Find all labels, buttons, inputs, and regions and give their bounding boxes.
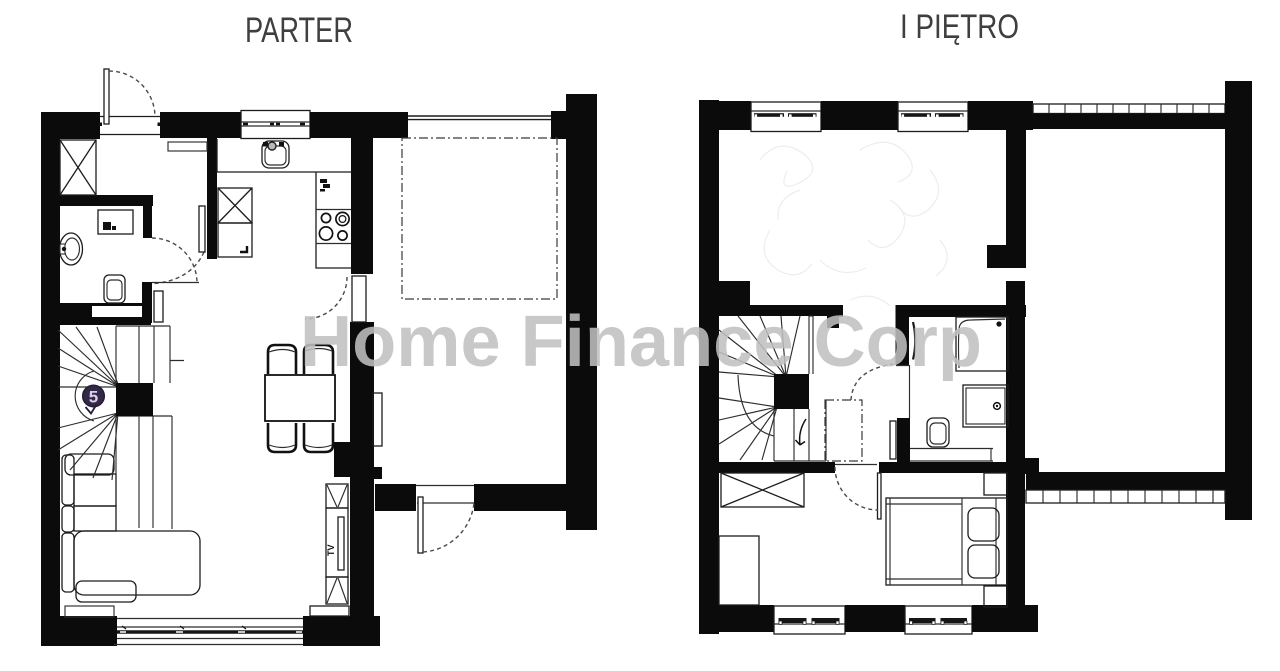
svg-text:PARTER: PARTER [245, 11, 353, 50]
svg-text:TV: TV [326, 544, 336, 556]
svg-text:I PIĘTRO: I PIĘTRO [900, 8, 1019, 46]
svg-text:Home Finance Corp: Home Finance Corp [300, 302, 982, 382]
svg-text:5: 5 [89, 388, 98, 407]
